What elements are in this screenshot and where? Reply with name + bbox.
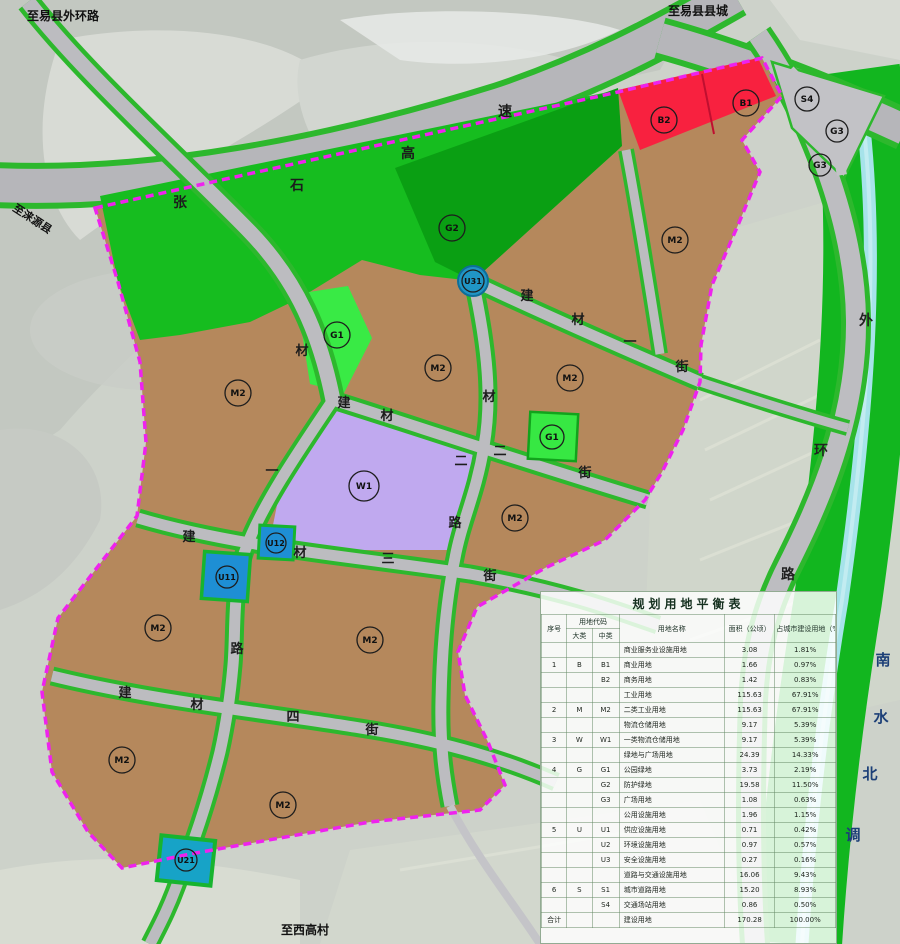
table-row: 绿地与广场用地24.3914.33%: [542, 748, 836, 763]
zone-badge-label: M2: [275, 801, 290, 811]
cell-area: 19.58: [724, 778, 775, 793]
col-major: 大类: [567, 629, 592, 643]
zone-badge-label: M2: [230, 389, 245, 399]
cell-pct: 0.63%: [775, 793, 836, 808]
table-row: 4GG1公园绿地3.732.19%: [542, 763, 836, 778]
cell-area: 0.27: [724, 853, 775, 868]
table-title: 规划用地平衡表: [541, 592, 836, 614]
road-name-char: 建: [118, 685, 131, 701]
cell-name: 防护绿地: [619, 778, 724, 793]
cell-minor: B2: [592, 673, 619, 688]
cell-name: 公园绿地: [619, 763, 724, 778]
cell-name: 道路与交通设施用地: [619, 868, 724, 883]
cell-minor: [592, 913, 619, 928]
edge-label: 至易县县城: [668, 3, 728, 18]
table-row: 3WW1一类物流仓储用地9.175.39%: [542, 733, 836, 748]
cell-seq: [542, 868, 567, 883]
col-minor: 中类: [592, 629, 619, 643]
cell-pct: 0.57%: [775, 838, 836, 853]
cell-minor: G2: [592, 778, 619, 793]
edge-label: 至西高村: [281, 922, 329, 937]
road-name-char: 高: [401, 145, 415, 162]
cell-pct: 8.93%: [775, 883, 836, 898]
cell-pct: 1.81%: [775, 643, 836, 658]
cell-name: 二类工业用地: [619, 703, 724, 718]
road-name-char: 二: [454, 454, 467, 469]
cell-area: 0.71: [724, 823, 775, 838]
zone-badge-label: U11: [218, 573, 236, 582]
table-row: 物流仓储用地9.175.39%: [542, 718, 836, 733]
table-row: 5UU1供应设施用地0.710.42%: [542, 823, 836, 838]
cell-area: 1.66: [724, 658, 775, 673]
road-name-char: 二: [493, 444, 506, 459]
road-name-char: 环: [814, 443, 828, 459]
cell-name: 公用设施用地: [619, 808, 724, 823]
cell-area: 16.06: [724, 868, 775, 883]
cell-name: 商业用地: [619, 658, 724, 673]
road-name-char: 街: [482, 568, 496, 584]
cell-area: 9.17: [724, 733, 775, 748]
cell-minor: G1: [592, 763, 619, 778]
cell-pct: 0.42%: [775, 823, 836, 838]
cell-pct: 9.43%: [775, 868, 836, 883]
cell-major: [567, 778, 592, 793]
road-name-char: 建: [520, 288, 533, 304]
cell-minor: B1: [592, 658, 619, 673]
cell-major: [567, 688, 592, 703]
cell-minor: U3: [592, 853, 619, 868]
col-pct: 占城市建设用地（%）: [775, 615, 836, 643]
table-row: 商业服务业设施用地3.081.81%: [542, 643, 836, 658]
cell-seq: [542, 688, 567, 703]
road-name-char: 材: [380, 408, 393, 424]
road-name-char: 水: [873, 708, 889, 726]
cell-seq: [542, 808, 567, 823]
cell-area: 115.63: [724, 688, 775, 703]
cell-seq: [542, 793, 567, 808]
cell-name: 环境设施用地: [619, 838, 724, 853]
land-use-balance-panel: 规划用地平衡表 序号 用地代码 用地名称 面积（公顷） 占城市建设用地（%） 大…: [540, 591, 837, 944]
cell-pct: 0.83%: [775, 673, 836, 688]
cell-area: 1.42: [724, 673, 775, 688]
cell-pct: 0.16%: [775, 853, 836, 868]
cell-seq: 5: [542, 823, 567, 838]
road-name-char: 街: [364, 722, 378, 738]
table-row: U3安全设施用地0.270.16%: [542, 853, 836, 868]
cell-area: 1.08: [724, 793, 775, 808]
cell-minor: U1: [592, 823, 619, 838]
cell-name: 城市道路用地: [619, 883, 724, 898]
planning-map-page: { "page_title": "规划用地平衡表", "colors": { "…: [0, 0, 900, 944]
cell-pct: 5.39%: [775, 718, 836, 733]
road-name-char: 街: [674, 359, 688, 375]
cell-major: [567, 853, 592, 868]
cell-seq: [542, 898, 567, 913]
zone-badge-label: M2: [150, 624, 165, 634]
cell-major: [567, 718, 592, 733]
cell-major: W: [567, 733, 592, 748]
cell-major: [567, 643, 592, 658]
zone-badge-label: M2: [114, 756, 129, 766]
road-name-char: 路: [781, 566, 796, 583]
table-row: G2防护绿地19.5811.50%: [542, 778, 836, 793]
cell-pct: 14.33%: [775, 748, 836, 763]
table-row: 合计建设用地170.28100.00%: [542, 913, 836, 928]
road-name-char: 调: [845, 826, 860, 844]
road-name-char: 街: [577, 465, 591, 481]
cell-area: 15.20: [724, 883, 775, 898]
road-name-char: 一: [265, 464, 278, 479]
cell-pct: 0.50%: [775, 898, 836, 913]
cell-name: 绿地与广场用地: [619, 748, 724, 763]
cell-seq: 1: [542, 658, 567, 673]
zone-badge-label: G1: [545, 433, 559, 443]
cell-seq: [542, 748, 567, 763]
cell-name: 商业服务业设施用地: [619, 643, 724, 658]
cell-major: [567, 868, 592, 883]
cell-name: 物流仓储用地: [619, 718, 724, 733]
table-row: 道路与交通设施用地16.069.43%: [542, 868, 836, 883]
cell-pct: 1.15%: [775, 808, 836, 823]
cell-minor: [592, 748, 619, 763]
cell-area: 3.08: [724, 643, 775, 658]
cell-area: 0.86: [724, 898, 775, 913]
zone-badge-label: G3: [813, 161, 827, 171]
cell-pct: 67.91%: [775, 688, 836, 703]
road-name-char: 三: [381, 552, 394, 567]
zone-badge-label: B2: [657, 116, 670, 126]
cell-seq: 2: [542, 703, 567, 718]
zone-badge-label: M2: [430, 364, 445, 374]
cell-name: 广场用地: [619, 793, 724, 808]
cell-seq: 3: [542, 733, 567, 748]
table-row: S4交通场站用地0.860.50%: [542, 898, 836, 913]
road-name-char: 一: [623, 335, 636, 350]
cell-minor: [592, 808, 619, 823]
cell-pct: 5.39%: [775, 733, 836, 748]
road-name-char: 材: [571, 312, 584, 328]
zone-badge-label: G3: [830, 127, 844, 137]
cell-minor: S4: [592, 898, 619, 913]
cell-area: 115.63: [724, 703, 775, 718]
cell-minor: [592, 643, 619, 658]
cell-area: 170.28: [724, 913, 775, 928]
table-row: 公用设施用地1.961.15%: [542, 808, 836, 823]
road-name-char: 建: [337, 395, 350, 411]
table-row: 工业用地115.6367.91%: [542, 688, 836, 703]
cell-minor: [592, 718, 619, 733]
cell-area: 3.73: [724, 763, 775, 778]
cell-seq: 6: [542, 883, 567, 898]
zone-badge-label: S4: [801, 95, 814, 105]
cell-minor: G3: [592, 793, 619, 808]
land-use-balance-table: 序号 用地代码 用地名称 面积（公顷） 占城市建设用地（%） 大类 中类 商业服…: [541, 614, 836, 928]
zone-badge-label: M2: [562, 374, 577, 384]
cell-name: 建设用地: [619, 913, 724, 928]
table-row: 1BB1商业用地1.660.97%: [542, 658, 836, 673]
zone-badge-label: M2: [507, 514, 522, 524]
cell-seq: [542, 718, 567, 733]
road-name-char: 外: [859, 312, 873, 329]
cell-pct: 0.97%: [775, 658, 836, 673]
cell-minor: S1: [592, 883, 619, 898]
road-name-char: 路: [448, 515, 462, 531]
cell-major: G: [567, 763, 592, 778]
zone-badge-label: G1: [330, 331, 344, 341]
cell-minor: M2: [592, 703, 619, 718]
cell-seq: [542, 838, 567, 853]
col-name: 用地名称: [619, 615, 724, 643]
cell-pct: 67.91%: [775, 703, 836, 718]
road-name-char: 张: [173, 195, 188, 211]
zone-badge-label: U21: [177, 856, 195, 865]
cell-major: B: [567, 658, 592, 673]
cell-major: [567, 808, 592, 823]
cell-major: M: [567, 703, 592, 718]
road-name-char: 材: [295, 343, 308, 359]
cell-area: 0.97: [724, 838, 775, 853]
zone-badge-label: M2: [667, 236, 682, 246]
cell-name: 一类物流仓储用地: [619, 733, 724, 748]
road-name-char: 速: [498, 103, 512, 120]
cell-seq: [542, 778, 567, 793]
zone-badge-label: U12: [267, 539, 285, 548]
zone-badge-label: B1: [739, 99, 752, 109]
cell-seq: 合计: [542, 913, 567, 928]
cell-minor: U2: [592, 838, 619, 853]
table-row: 6SS1城市道路用地15.208.93%: [542, 883, 836, 898]
road-name-char: 材: [293, 545, 306, 561]
zone-badge-label: M2: [362, 636, 377, 646]
col-seq: 序号: [542, 615, 567, 643]
cell-area: 1.96: [724, 808, 775, 823]
cell-seq: [542, 673, 567, 688]
road-name-char: 石: [289, 178, 304, 194]
table-row: B2商务用地1.420.83%: [542, 673, 836, 688]
cell-name: 工业用地: [619, 688, 724, 703]
cell-name: 交通场站用地: [619, 898, 724, 913]
table-row: G3广场用地1.080.63%: [542, 793, 836, 808]
cell-major: U: [567, 823, 592, 838]
zone-badge-label: W1: [356, 482, 372, 492]
cell-pct: 2.19%: [775, 763, 836, 778]
cell-minor: [592, 688, 619, 703]
cell-pct: 100.00%: [775, 913, 836, 928]
cell-seq: [542, 853, 567, 868]
cell-major: [567, 673, 592, 688]
table-row: 2MM2二类工业用地115.6367.91%: [542, 703, 836, 718]
col-area: 面积（公顷）: [724, 615, 775, 643]
cell-seq: 4: [542, 763, 567, 778]
zone-badge-label: U31: [464, 277, 482, 286]
cell-seq: [542, 643, 567, 658]
cell-area: 9.17: [724, 718, 775, 733]
cell-name: 商务用地: [619, 673, 724, 688]
road-name-char: 材: [482, 389, 495, 405]
cell-name: 安全设施用地: [619, 853, 724, 868]
road-name-char: 路: [230, 641, 244, 657]
col-code: 用地代码: [567, 615, 620, 629]
cell-area: 24.39: [724, 748, 775, 763]
cell-pct: 11.50%: [775, 778, 836, 793]
cell-major: S: [567, 883, 592, 898]
zone-badge-label: G2: [445, 224, 459, 234]
road-name-char: 四: [286, 710, 299, 725]
road-name-char: 北: [862, 765, 877, 783]
cell-major: [567, 793, 592, 808]
cell-minor: [592, 868, 619, 883]
edge-label: 至易县外环路: [27, 8, 100, 23]
cell-major: [567, 838, 592, 853]
road-name-char: 南: [875, 651, 890, 669]
cell-major: [567, 898, 592, 913]
table-row: U2环境设施用地0.970.57%: [542, 838, 836, 853]
cell-minor: W1: [592, 733, 619, 748]
cell-major: [567, 748, 592, 763]
road-name-char: 材: [190, 697, 203, 713]
cell-name: 供应设施用地: [619, 823, 724, 838]
cell-major: [567, 913, 592, 928]
road-name-char: 建: [182, 529, 195, 545]
